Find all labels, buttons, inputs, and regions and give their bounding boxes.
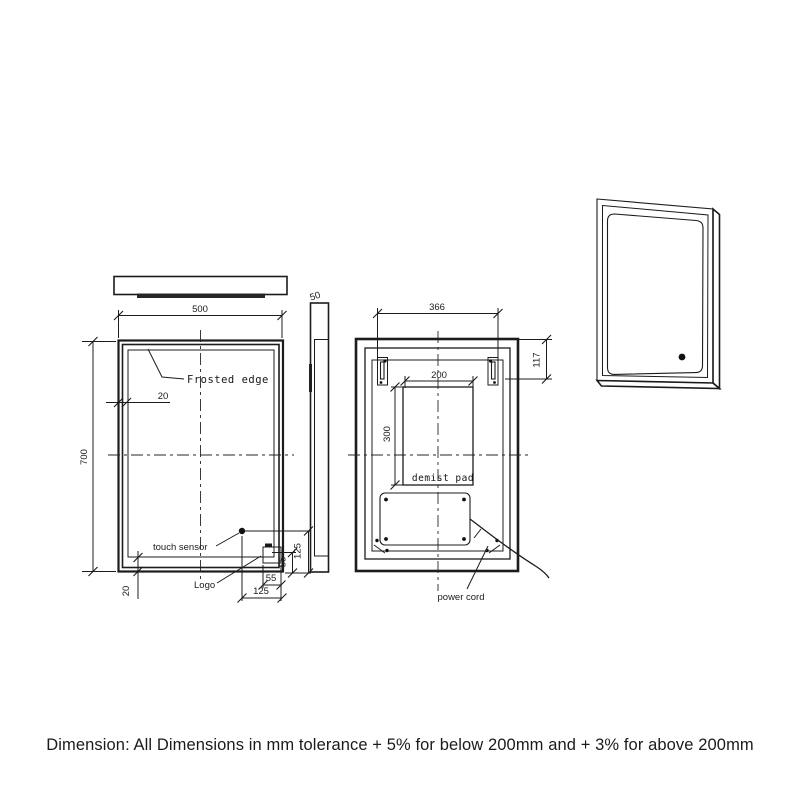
touch-sensor-label: touch sensor — [153, 542, 207, 553]
logo-leader — [217, 556, 261, 583]
corner-bevel-right — [489, 545, 500, 553]
junction-box-screw — [462, 537, 466, 541]
side-view: 50 — [308, 290, 328, 572]
top-view-glass-lip — [137, 294, 265, 299]
demist-pad-label: demist pad — [412, 473, 474, 484]
side-view-glass-line — [315, 340, 329, 557]
frosted-edge-label: Frosted edge — [187, 374, 269, 386]
dim-front-height: 700 — [79, 449, 90, 465]
side-view-outline — [311, 303, 329, 572]
back-dim-ticks — [373, 309, 551, 490]
back-view: demist pad power cord — [348, 331, 549, 603]
junction-box — [380, 493, 470, 545]
back-frame-inner — [372, 360, 503, 551]
dim-logo-width: 55 — [266, 573, 277, 584]
dim-depth: 50 — [308, 290, 321, 304]
dim-edge-bottom: 20 — [121, 586, 132, 597]
frosted-edge-leader — [148, 349, 184, 379]
drawing-canvas: Frosted edge touch sensor Logo 500 700 2… — [0, 0, 800, 800]
logo-label: Logo — [194, 580, 215, 591]
dim-edge-top: 20 — [158, 391, 169, 402]
touch-sensor-leader — [216, 533, 239, 546]
tolerance-note: Dimension: All Dimensions in mm toleranc… — [0, 736, 800, 755]
dim-pad-width: 200 — [431, 370, 447, 381]
hanging-bracket-right — [488, 358, 498, 386]
frame-screw — [385, 549, 388, 552]
top-view-outline — [114, 277, 287, 295]
side-view-bracket-profile — [309, 364, 312, 392]
front-view: Frosted edge touch sensor Logo — [108, 330, 294, 591]
dim-pad-height: 300 — [382, 426, 393, 442]
perspective-view — [597, 199, 720, 389]
mirror-side-face — [713, 209, 720, 389]
power-cord-leader — [467, 546, 488, 589]
perspective-touch-sensor-dot — [679, 354, 686, 361]
junction-box-screw — [384, 537, 388, 541]
frame-screw — [375, 539, 378, 542]
junction-box-screw — [384, 498, 388, 502]
mirror-technical-drawing: Frosted edge touch sensor Logo 500 700 2… — [0, 0, 800, 800]
power-cord-tick — [474, 529, 481, 538]
mirror-front-face — [597, 199, 713, 383]
back-view-dimensions: 366 117 200 300 — [373, 302, 552, 490]
front-view-dimensions: 500 700 20 20 125 55 55 — [79, 304, 313, 603]
top-view — [114, 277, 287, 299]
mirror-frame-inner-edge — [603, 206, 709, 378]
dim-bracket-from-top: 117 — [532, 352, 543, 367]
hanging-bracket-left — [378, 358, 388, 386]
dim-bracket-span: 366 — [429, 302, 445, 313]
corner-bevel-left — [374, 545, 385, 553]
dim-front-width: 500 — [192, 304, 208, 315]
mirror-frosted-border — [608, 214, 704, 374]
power-cord-label: power cord — [438, 592, 485, 603]
dim-logo-height: 55 — [278, 557, 289, 568]
logo-mark — [265, 544, 272, 547]
junction-box-screw — [462, 498, 466, 502]
